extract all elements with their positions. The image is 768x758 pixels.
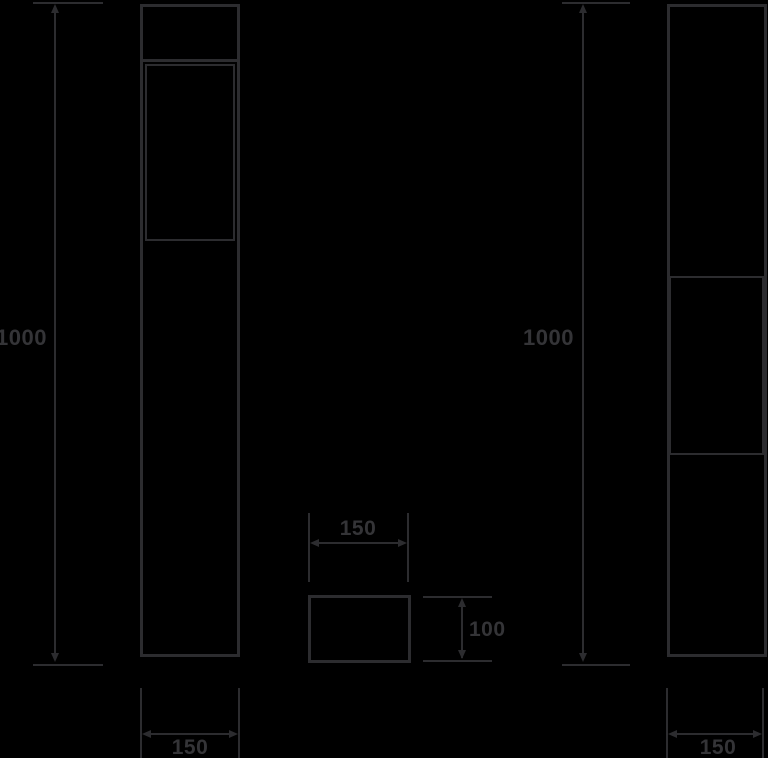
arrowhead-up-icon <box>458 598 466 607</box>
arrowhead-right-icon <box>229 730 238 738</box>
extension-line-left <box>666 688 668 758</box>
arrowhead-left-icon <box>668 730 677 738</box>
dimension-line-vertical <box>54 7 56 655</box>
arrowhead-left-icon <box>310 539 319 547</box>
arrowhead-down-icon <box>579 653 587 662</box>
arrowhead-right-icon <box>753 730 762 738</box>
extension-tick-top <box>562 2 630 4</box>
dimension-line-vertical <box>582 7 584 655</box>
extension-line-left <box>140 688 142 758</box>
extension-tick-top <box>33 2 103 4</box>
arrowhead-down-icon <box>51 653 59 662</box>
dimension-label-left-base-width: 150 <box>160 737 220 758</box>
technical-dimension-drawing: 1000 150 150 100 <box>0 0 768 758</box>
dimension-line-horizontal <box>677 733 753 735</box>
left-bollard-window-panel <box>145 64 235 241</box>
arrowhead-down-icon <box>458 650 466 659</box>
left-bollard-cap-divider <box>143 59 237 62</box>
extension-line-left <box>308 513 310 582</box>
extension-line-right <box>238 688 240 758</box>
extension-line-right <box>407 513 409 582</box>
dimension-line-horizontal <box>319 542 398 544</box>
right-bollard-window-panel <box>669 276 764 455</box>
arrowhead-left-icon <box>142 730 151 738</box>
dimension-label-right-base-width: 150 <box>688 737 748 758</box>
dimension-label-right-height: 1000 <box>523 326 574 350</box>
extension-tick-bottom <box>423 660 492 662</box>
extension-line-right <box>762 688 764 758</box>
arrowhead-right-icon <box>398 539 407 547</box>
base-plate-outline <box>308 595 411 663</box>
dimension-label-left-height: 1000 <box>0 326 47 350</box>
extension-tick-bottom <box>33 664 103 666</box>
arrowhead-up-icon <box>579 4 587 13</box>
dimension-line-horizontal <box>151 733 229 735</box>
extension-tick-bottom <box>562 664 630 666</box>
dimension-label-plate-height: 100 <box>469 619 515 641</box>
arrowhead-up-icon <box>51 4 59 13</box>
dimension-label-plate-width: 150 <box>328 518 388 540</box>
